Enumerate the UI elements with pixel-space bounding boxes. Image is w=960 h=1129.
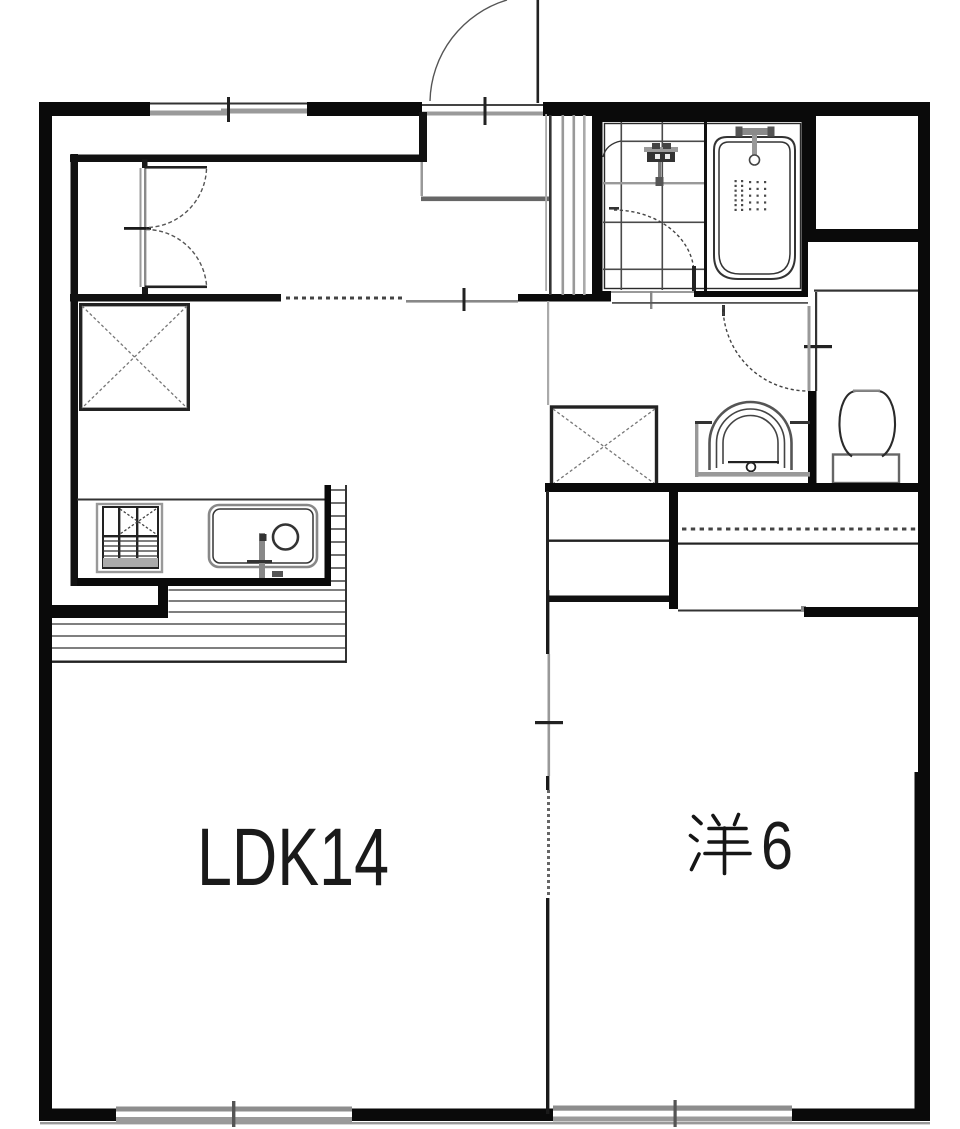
svg-text:6: 6: [761, 808, 793, 884]
svg-text:LDK14: LDK14: [197, 812, 389, 903]
